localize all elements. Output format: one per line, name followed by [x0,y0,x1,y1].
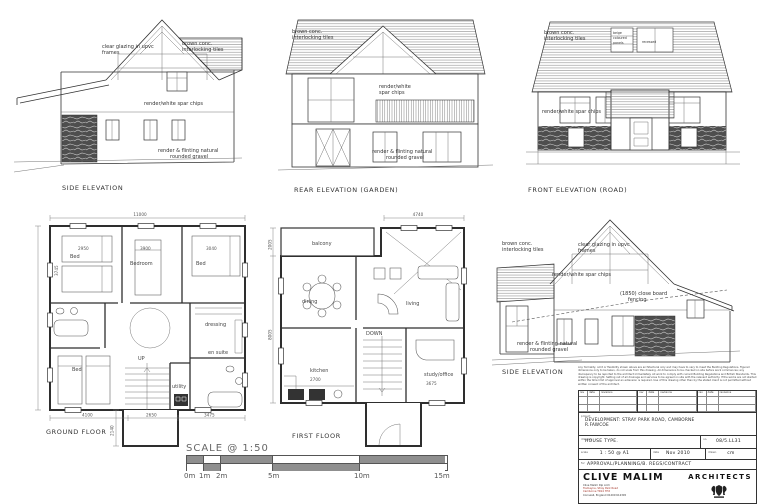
drawing-field: drawing HOUSE TYPE. [579,436,701,448]
purpose-field: for APPROVAL/PLANNING/B. REGS/CONTRACT [579,460,756,469]
dim-b1: 4100 [82,413,93,418]
scale-bar-graphic [186,455,448,471]
stone-plinth [669,126,726,150]
scale-label: scale [579,449,588,454]
annotation-wall: render/white spar chips [552,272,611,278]
project-line2: R.FAWCOE [579,423,756,428]
tick-0m: 0m [184,472,195,480]
front-elevation: beige coloured panels recessed brown con… [518,12,748,187]
dim-w2: 3900 [140,246,151,251]
room-living: living [406,301,419,307]
drawing-title: HOUSE TYPE. [579,436,700,444]
tick-2m: 2m [216,472,227,480]
number-label: no. [701,436,707,441]
tick-5m: 5m [268,472,279,480]
room-dining: dining [302,299,317,305]
general-notes: Any formality, omit or flexibility shown… [578,366,757,390]
drawing-sheet: { "elevations": { "side1": { "label": "S… [0,0,760,500]
firm-panel: CLIVE MALIM ARCHITECTS Clive Malim Dip A… [579,470,756,503]
annotation-glazing2: frames [102,50,120,56]
dim-b3: 3475 [204,413,215,418]
room-bed1: Bed [70,254,80,260]
drawing-number: 08/5.LL31 [701,436,756,444]
room-balcony: balcony [312,241,332,247]
room-bedroom: Bedroom [130,261,153,267]
rear-elevation-label: REAR ELEVATION (GARDEN) [294,186,398,194]
annotation-roof2: interlocking tiles [544,36,586,42]
stone-plinth [635,316,675,356]
ground-floor-plan: 11000 Bed Bedroom Bed Bed dressing en su… [30,208,265,456]
stairs-up: UP [138,356,145,362]
number-field: no. 08/5.LL31 [701,436,756,448]
dim-d1: 3745 [54,265,59,276]
dim-overall: 11000 [133,212,147,217]
room-ensuite: en suite [208,350,228,356]
dim-w3: 3040 [206,246,217,251]
rear-elevation: brown conc. interlocking tiles render/wh… [278,12,493,187]
date-label: date [651,449,659,454]
dim-kitchen: 2700 [310,377,321,382]
scale-ticks: 0m 1m 2m 5m 10m 15m [186,471,456,481]
annotation-roof2: interlocking tiles [292,35,334,41]
annotation-base2: rounded gravel [386,155,424,161]
annotation-wall: render/white spar chips [144,101,203,107]
tick-1m: 1m [199,472,210,480]
side-elevation-1-label: SIDE ELEVATION [62,184,123,192]
drawing-label: drawing [579,436,592,441]
for-label: for [579,460,585,465]
room-bed2: Bed [196,261,206,267]
roof-tile-band [497,264,554,302]
first-floor-plan: 4740 2005 8005 balcony dining living kit… [266,208,481,458]
first-floor-label: FIRST FLOOR [292,432,341,440]
side-elevation-2-label: SIDE ELEVATION [502,368,563,376]
dim-left2: 8005 [268,329,273,340]
annotation-dormer1c: panels [613,41,624,45]
annotation-base2: rounded gravel [530,347,568,353]
annotation-dormer1b: coloured [613,36,627,40]
dim-w1: 2950 [78,246,89,251]
tick-10m: 10m [354,472,370,480]
scale-field: scale 1 : 50 @ A1 [579,449,651,459]
project-field: project DEVELOPMENT: STRAY PARK ROAD, CA… [579,413,756,436]
firm-address: Clive Malim Dip Arch Tremayne, Stray Par… [583,484,626,497]
revision-table: rev date revisions rev date revisions re… [579,391,756,413]
dim-porch: 2140 [110,425,115,436]
drawn-field: drawn cm [706,449,756,459]
annotation-wall2: spar chips [379,90,405,96]
firm-type: ARCHITECTS [688,473,752,481]
scale-value: 1 : 50 @ A1 [579,449,650,456]
annotation-roof2: interlocking tiles [182,47,224,53]
dim-top: 4740 [413,212,424,217]
scale-title: SCALE @ 1:50 [186,443,456,454]
dim-b2: 2650 [146,413,157,418]
side-elevation-1: clear glazing in upvc frames brown conc.… [14,12,264,187]
annotation-roof2: interlocking tiles [502,247,544,253]
annotation-wall: render/white spar chips [542,109,601,115]
firm-name: CLIVE MALIM [583,472,664,483]
drawn-label: drawn [706,449,716,454]
annotation-dormer2: recessed [642,40,656,44]
ground-floor-label: GROUND FLOOR [46,428,106,436]
balcony-railing [376,100,474,122]
room-dressing: dressing [205,322,226,328]
title-block: Any formality, omit or flexibility shown… [578,366,757,504]
architects-crest-icon [710,483,728,499]
scale-bar: SCALE @ 1:50 0m 1m 2m 5m 10m 15m [186,443,456,481]
annotation-dormer1a: beige [613,31,622,35]
porch-roof [606,92,674,118]
annotation-base2: rounded gravel [170,154,208,160]
dim-left1: 2005 [268,239,273,250]
date-field: date Nov 2010 [651,449,706,459]
side-elevation-2: brown conc. interlocking tiles clear gla… [492,214,742,366]
stairs-down: DOWN [366,331,383,337]
room-bed3: Bed [72,367,82,373]
room-study: study/office [424,372,453,378]
date-value: Nov 2010 [651,449,705,456]
address-line: Cornwall, England 01209 612345 [583,494,626,497]
annotation-glazing2: frames [578,248,596,254]
room-utility: utility [172,384,186,390]
dim-study: 3675 [426,381,437,386]
stone-plinth [62,115,97,162]
room-kitchen: kitchen [310,368,328,374]
purpose-value: APPROVAL/PLANNING/B. REGS/CONTRACT [579,460,756,467]
annotation-fence2: fencing [628,297,647,303]
front-elevation-label: FRONT ELEVATION (ROAD) [528,186,627,194]
tick-15m: 15m [434,472,450,480]
entrance-porch [366,403,421,446]
